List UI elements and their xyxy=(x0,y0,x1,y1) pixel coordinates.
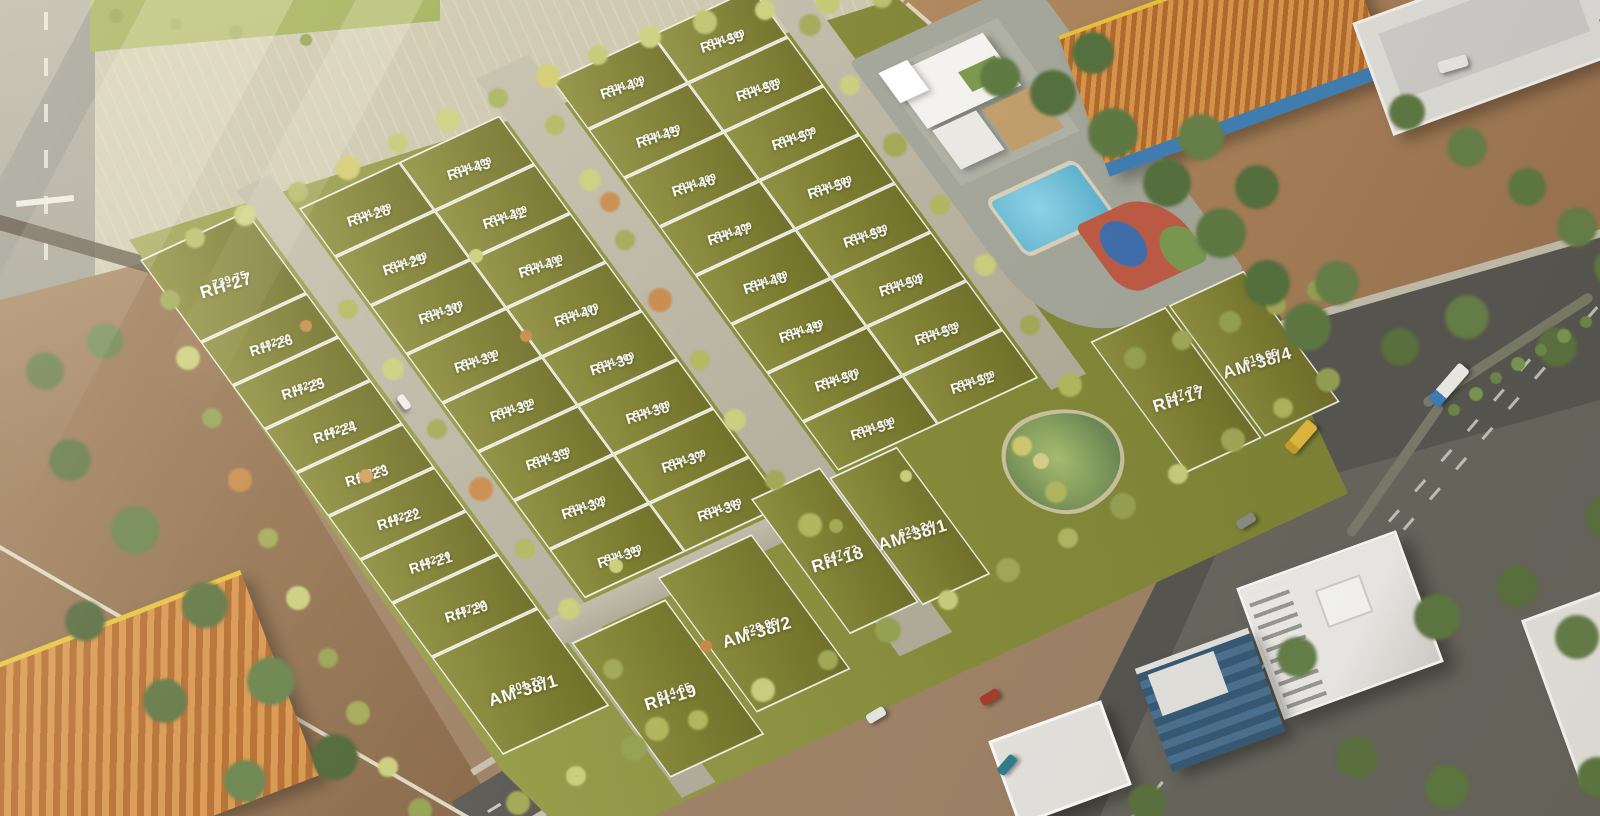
siteplan-render: RH-27739.75 RH-26482.20 RH-25482.20 RH-2… xyxy=(0,0,1600,816)
building-roof xyxy=(1148,651,1229,716)
left-road-lane-dashes xyxy=(44,0,48,260)
roof-structure xyxy=(1315,574,1374,628)
